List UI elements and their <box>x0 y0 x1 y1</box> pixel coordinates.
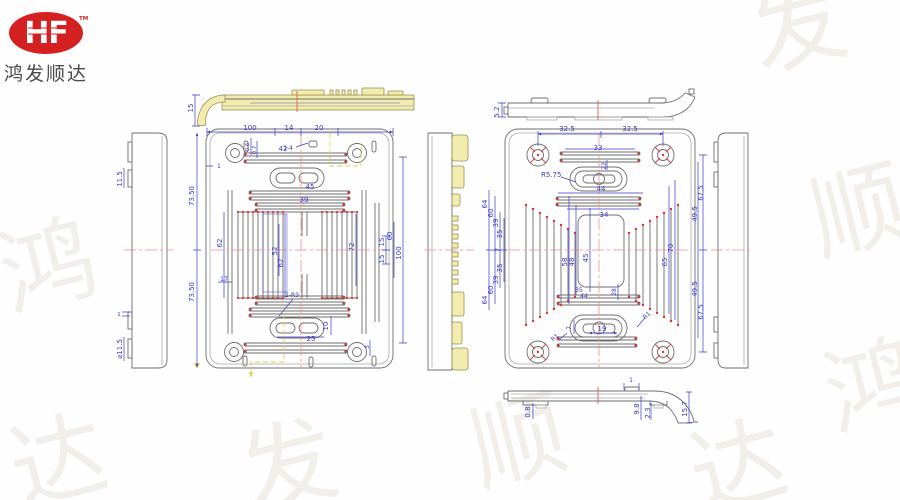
dim-label: 10 <box>322 322 330 331</box>
dim-label: 49.5 <box>691 206 699 222</box>
side-view-left: 11.5 1 ⌀11.5 <box>116 133 173 368</box>
dim-label: 49.5 <box>691 281 699 297</box>
dim-label: 100 <box>243 124 256 132</box>
dim-label: 60 <box>487 286 495 295</box>
dim-label: 15 <box>187 104 195 113</box>
dim-label: 3 <box>364 345 371 349</box>
dim-label: 67.5 <box>697 185 705 201</box>
dim-label: 35 <box>496 230 504 239</box>
side-view-right <box>711 133 752 368</box>
logo-company-name: 鸿发顺达 <box>4 63 88 85</box>
dim-label: 67.5 <box>697 304 705 320</box>
dim-label: 35 <box>496 264 504 273</box>
dim-label: 1 <box>117 312 121 318</box>
dim-label: 9.8 <box>633 403 641 414</box>
dim-label: 45 <box>582 254 590 263</box>
dim-label: 48 <box>568 258 576 267</box>
watermark-char: 发 <box>229 403 348 500</box>
dim-label: 62 <box>277 259 285 268</box>
dim-label: 32.5 <box>559 125 575 133</box>
dim-label: 20 <box>315 124 324 132</box>
dim-label: 22 <box>601 162 608 170</box>
dim-label: 62 <box>216 239 224 248</box>
dim-label: 11.5 <box>116 171 124 187</box>
watermark-char: 达 <box>679 403 798 500</box>
dim-label: 1 <box>629 377 633 384</box>
front-view-right: 32.5 32.5 33 R5.75 22 44 34 64 60 39 35 … <box>481 125 707 369</box>
logo: HF TM 鸿发顺达 <box>4 12 88 85</box>
dim-label: 5.2 <box>493 106 501 117</box>
dim-label: 52 <box>271 247 279 256</box>
dim-label: 7 <box>494 248 502 252</box>
dim-label: ⌀11.5 <box>116 339 124 359</box>
watermark-char: 鸿 <box>0 203 108 333</box>
dim-label: 2-R3 <box>285 292 299 299</box>
top-view-right: 5.2 <box>493 89 695 120</box>
dimension-labels: 100 14 20 0.6 0.7 1-4 42 1 45 39 73.50 7… <box>188 124 403 349</box>
dim-label: 15 <box>378 238 386 247</box>
dim-label: 44 <box>580 293 588 300</box>
dim-label: 32.5 <box>622 125 638 133</box>
dim-label: 64 <box>481 199 489 208</box>
dim-label: R1 <box>550 332 561 343</box>
dim-label: R5.75 <box>541 171 561 179</box>
dim-label: 33 <box>594 144 603 152</box>
dim-label: 60 <box>487 209 495 218</box>
dim-label: 42 <box>279 145 288 153</box>
side-section-view-middle <box>424 133 474 370</box>
dim-label: 14 <box>285 124 294 132</box>
watermark-char: 发 <box>739 0 858 92</box>
top-view-left: 15 <box>187 88 414 126</box>
dim-label: 39 <box>492 219 500 228</box>
dim-label: 2.3 <box>644 407 652 418</box>
watermark-char: 鸿 <box>814 323 900 453</box>
dim-label: 39 <box>300 196 309 204</box>
dim-label: 39 <box>492 276 500 285</box>
keyhole-slot-bottom <box>270 318 324 338</box>
dim-label: 17 <box>220 276 228 283</box>
keyhole-slot-top <box>270 168 324 188</box>
dim-label: 60 <box>386 232 394 241</box>
dim-label: 0.7 <box>252 145 258 154</box>
dim-label: 45 <box>306 183 315 191</box>
dim-label: 72 <box>348 243 356 252</box>
dim-label: 0.6 <box>245 142 251 151</box>
dim-label: 28 <box>611 288 618 296</box>
central-recess <box>578 215 624 287</box>
fin-array <box>526 205 678 325</box>
dim-label: 25 <box>307 335 316 343</box>
dim-label: 73.50 <box>188 282 196 302</box>
watermark-char: 顺 <box>799 148 900 278</box>
dim-label: 44 <box>597 185 606 193</box>
dim-label: 0.8 <box>524 406 532 417</box>
watermark-char: 达 <box>0 398 118 500</box>
watermark-char: 顺 <box>459 378 578 500</box>
front-view-left: 100 14 20 0.6 0.7 1-4 42 1 45 39 73.50 7… <box>188 124 407 378</box>
dim-label: 70 <box>667 244 675 253</box>
dim-label: 64 <box>481 295 489 304</box>
dim-label: 73.50 <box>188 186 196 206</box>
dim-label: 1 <box>217 163 221 170</box>
dim-label: 65 <box>661 258 669 267</box>
dim-label: 15 <box>378 255 386 264</box>
rib-bars <box>244 153 350 353</box>
rib-end-marks <box>244 153 349 352</box>
dim-label: 19 <box>598 325 607 333</box>
dim-label: 7 <box>566 326 573 330</box>
fin-end-marks <box>525 204 679 326</box>
fin-end-marks <box>237 211 358 299</box>
cad-drawing: 鸿 达 发 顺 达 顺 发 鸿 HF TM 鸿发顺达 11.5 1 ⌀11.5 <box>0 0 900 500</box>
screw-holes <box>225 144 367 362</box>
dim-label: 100 <box>395 246 403 259</box>
dim-label: 15.7 <box>681 401 689 417</box>
logo-trademark: TM <box>79 16 88 22</box>
dim-label: 34 <box>600 211 609 219</box>
